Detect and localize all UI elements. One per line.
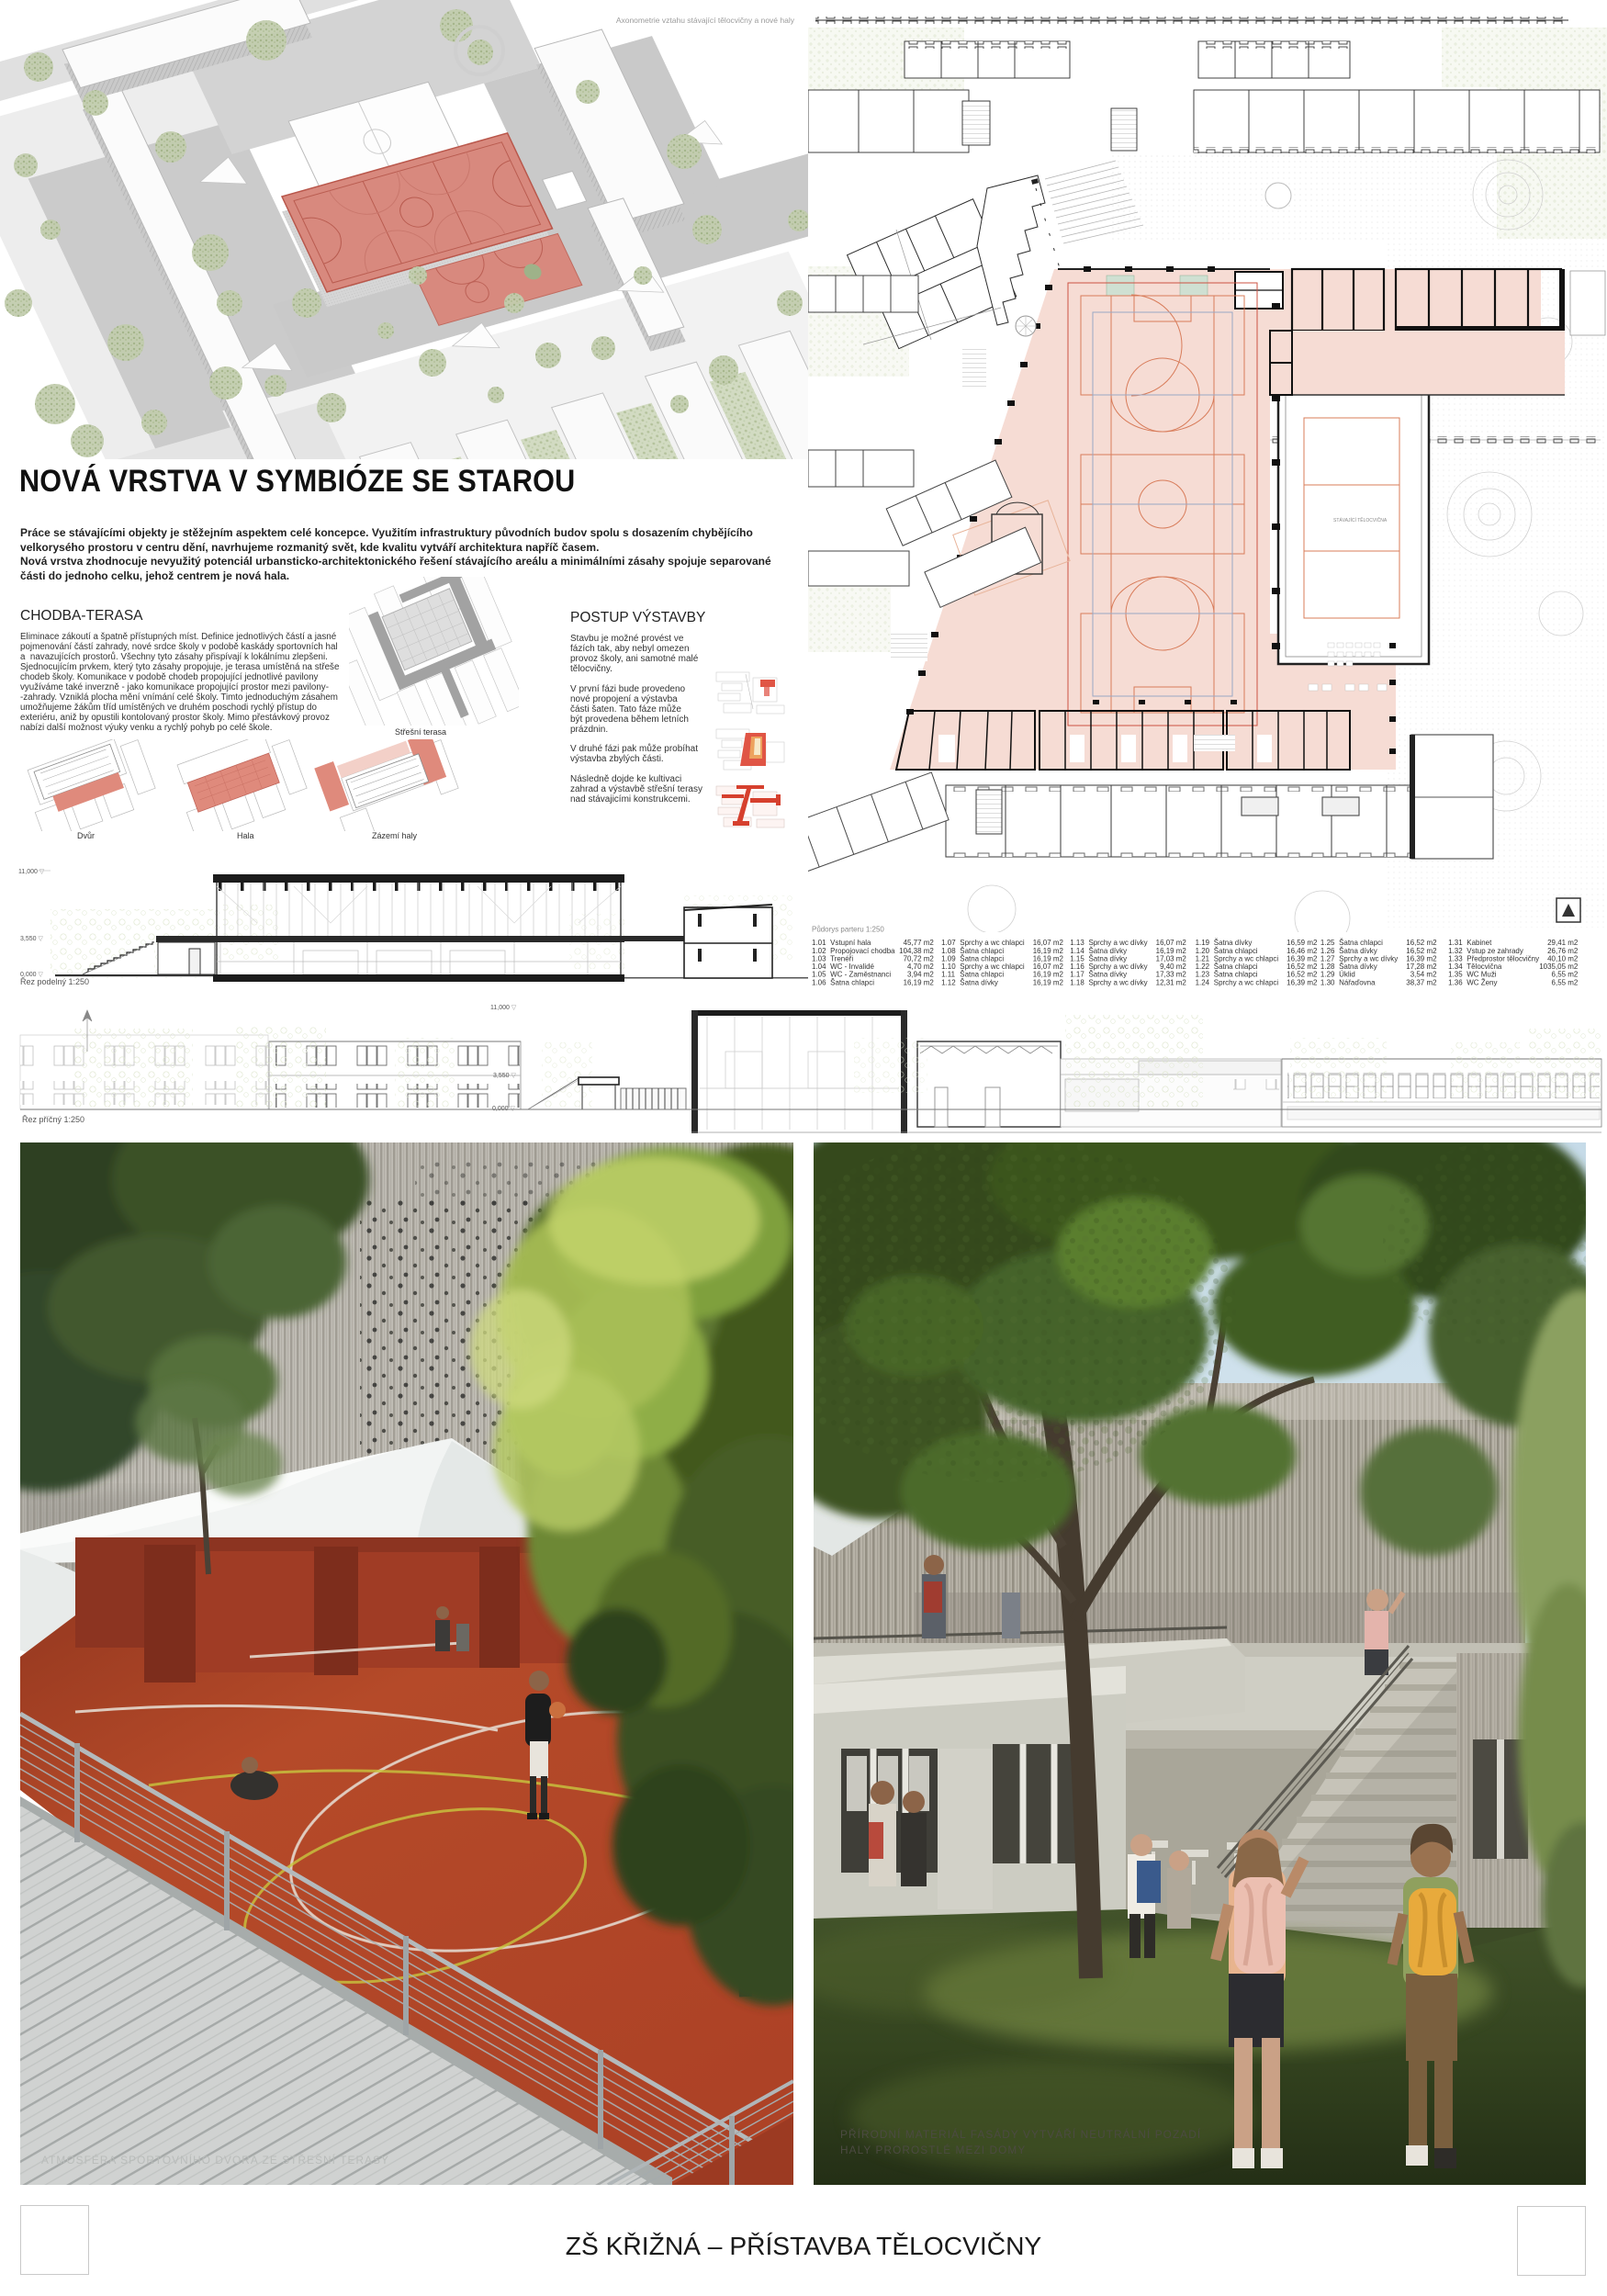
svg-text:3,550 ▽: 3,550 ▽ [493, 1073, 516, 1079]
svg-text:STÁVAJÍCÍ TĚLOCVIČNA: STÁVAJÍCÍ TĚLOCVIČNA [1333, 516, 1388, 523]
svg-text:3,550 ▽: 3,550 ▽ [20, 936, 43, 942]
svg-text:ATMOSFÉRA SPORTOVNÍHO DVORA ZE: ATMOSFÉRA SPORTOVNÍHO DVORA ZE STŘEŠNÍ T… [41, 2154, 389, 2167]
svg-text:11,000 ▽: 11,000 ▽ [18, 869, 45, 875]
svg-text:HALY PROROSTLÉ MEZI DOMY: HALY PROROSTLÉ MEZI DOMY [840, 2144, 1026, 2156]
svg-text:PŘÍRODNÍ MATERIÁL FASÁDY VYTVÁ: PŘÍRODNÍ MATERIÁL FASÁDY VYTVÁŘÍ NEUTRÁL… [840, 2128, 1201, 2141]
svg-text:11,000 ▽: 11,000 ▽ [490, 1005, 517, 1011]
